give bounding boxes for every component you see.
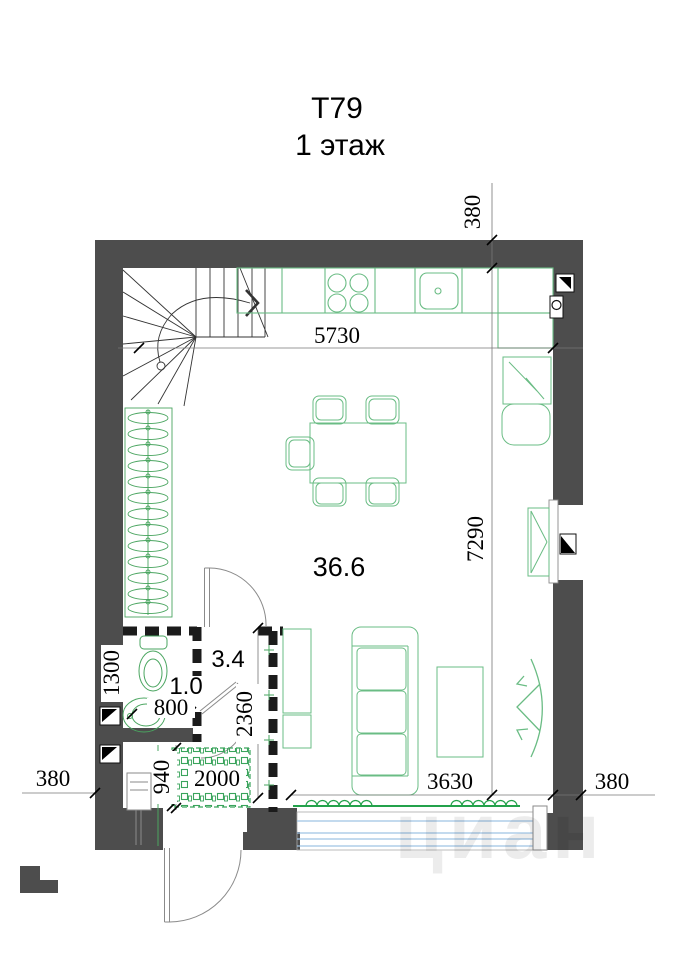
staircase (123, 268, 268, 406)
window-right-sill (549, 500, 558, 583)
kitchen-counter-return (498, 313, 553, 348)
armchair (502, 357, 551, 445)
toilet-icon (139, 636, 167, 691)
stove-icon (328, 274, 368, 312)
plan-subtitle-floor: 1 этаж (295, 129, 385, 162)
cabinet-low (283, 715, 311, 748)
dim-entry-width: 2000 (194, 766, 240, 791)
dimension-ticks (90, 235, 586, 813)
room-label-wc: 1.0 (169, 673, 202, 700)
marker-circle-top-right (552, 301, 561, 310)
dim-wc-depth: 1300 (99, 650, 124, 696)
stair-cut-line (240, 268, 268, 337)
dim-wall-top: 380 (460, 195, 485, 230)
coffee-table (437, 667, 483, 757)
room-label-living: 36.6 (313, 552, 366, 582)
window-right (528, 500, 558, 583)
sink-icon (420, 273, 458, 309)
pier-entry-left (123, 808, 163, 832)
door-entrance (165, 848, 242, 922)
dim-width-top: 5730 (314, 323, 360, 348)
dim-height-right: 7290 (463, 516, 488, 562)
dim-entry-depth: 940 (149, 760, 174, 795)
plant-icon (517, 659, 542, 757)
window-right-casement (528, 508, 549, 576)
pier-entry-left-base (95, 830, 163, 850)
wall-top (95, 240, 583, 268)
wardrobe (125, 408, 172, 617)
watermark: циан (395, 787, 605, 875)
kitchen-counter (237, 268, 553, 348)
plan-title: Т79 (311, 92, 363, 125)
dining-table (310, 423, 406, 483)
cabinet-tall (283, 629, 311, 713)
porch-block (20, 866, 58, 893)
dim-wall-left: 380 (36, 766, 71, 791)
floor-plan-svg: Т79 1 этаж (0, 0, 678, 960)
room-label-hall: 3.4 (211, 646, 244, 673)
dining-set (286, 396, 406, 506)
pier-bottom-center-base (243, 832, 300, 850)
door-hall-to-living (205, 568, 267, 627)
dim-hall-depth: 2360 (232, 691, 257, 737)
